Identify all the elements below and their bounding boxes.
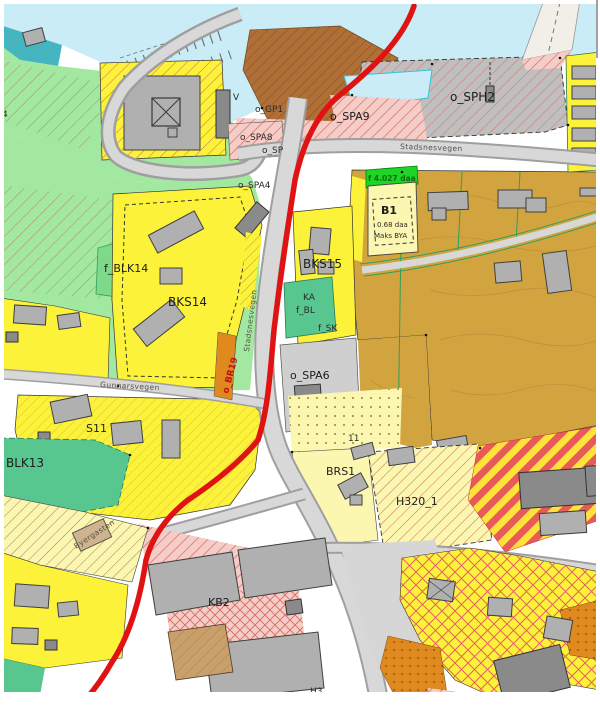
label-b1: B1 bbox=[381, 204, 397, 217]
map-layers: 4 V o_GP1 o_SPA8 o_SP o_SPA4 o_SPA9 o_SP… bbox=[0, 0, 600, 706]
label-b1-daa: 0.68 daa bbox=[377, 221, 408, 229]
label-kb2: KB2 bbox=[208, 596, 230, 609]
label-s11: S11 bbox=[86, 422, 107, 435]
label-gp1: o_GP1 bbox=[255, 105, 283, 115]
label-v: V bbox=[233, 93, 240, 103]
label-blk14: f_BLK14 bbox=[104, 262, 148, 275]
map-svg: 4 V o_GP1 o_SPA8 o_SP o_SPA4 o_SPA9 o_SP… bbox=[0, 0, 600, 706]
label-11: 11 bbox=[348, 434, 359, 444]
label-blk13: BLK13 bbox=[6, 456, 44, 470]
label-h320: H320_1 bbox=[396, 495, 438, 508]
label-brs1: BRS1 bbox=[326, 465, 355, 478]
label-fsk: f_SK bbox=[318, 324, 338, 334]
label-sp: o_SP bbox=[262, 146, 284, 156]
label-bks14: BKS14 bbox=[168, 295, 207, 309]
label-b1-bya: Maks BYA bbox=[374, 232, 407, 240]
label-spa8: o_SPA8 bbox=[240, 133, 273, 143]
label-spa6: o_SPA6 bbox=[290, 369, 330, 382]
label-fbl: f_BL bbox=[296, 306, 315, 316]
label-bks15: BKS15 bbox=[303, 257, 342, 271]
label-ka: KA bbox=[303, 293, 316, 303]
zoning-map: 4 V o_GP1 o_SPA8 o_SP o_SPA4 o_SPA9 o_SP… bbox=[0, 0, 600, 706]
label-spa4: o_SPA4 bbox=[238, 181, 271, 191]
label-sph2: o_SPH2 bbox=[450, 90, 495, 104]
label-spa9: o_SPA9 bbox=[330, 110, 370, 123]
label-h3: H3 bbox=[310, 687, 323, 697]
label-b1-area: f 4.027 daa bbox=[368, 174, 416, 183]
